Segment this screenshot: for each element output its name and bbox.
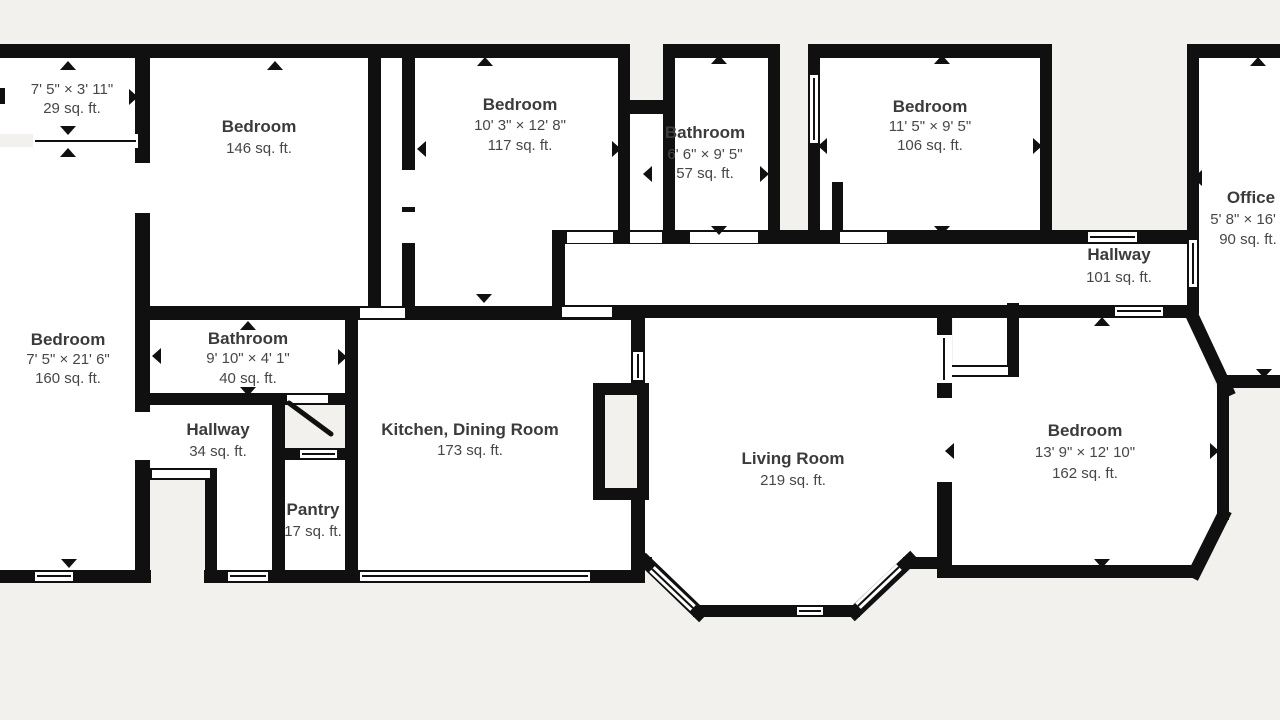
room-area: 162 sq. ft. xyxy=(1052,465,1118,482)
door-opening xyxy=(948,367,1008,375)
door-opening xyxy=(135,163,150,213)
room-dimensions: 10' 3" × 12' 8" xyxy=(474,117,566,134)
door-opening xyxy=(402,212,415,243)
room-name: Bathroom xyxy=(208,329,288,348)
room-area: 219 sq. ft. xyxy=(760,472,826,489)
door-opening xyxy=(152,470,210,478)
room-shape-bedroom-146 xyxy=(150,58,368,308)
room-name: Bedroom xyxy=(483,95,558,114)
room-area: 101 sq. ft. xyxy=(1086,269,1152,286)
room-area: 90 sq. ft. xyxy=(1219,231,1277,248)
room-area: 17 sq. ft. xyxy=(284,523,342,540)
room-area: 29 sq. ft. xyxy=(43,100,101,117)
room-shape-bedroom-162-closet xyxy=(953,317,1007,365)
label-bedroom-160: Bedroom 7' 5" × 21' 6" 160 sq. ft. xyxy=(26,330,110,387)
room-area: 57 sq. ft. xyxy=(676,165,734,182)
door-opening xyxy=(567,232,613,243)
room-name: Kitchen, Dining Room xyxy=(381,420,559,439)
door-opening xyxy=(360,308,405,318)
room-name: Bedroom xyxy=(1048,421,1123,440)
chimney-void xyxy=(605,395,637,488)
room-name: Bedroom xyxy=(31,330,106,349)
room-dimensions: 11' 5" × 9' 5" xyxy=(889,118,971,135)
room-shape-mudroom xyxy=(217,468,272,570)
room-area: 173 sq. ft. xyxy=(437,442,503,459)
room-name: Hallway xyxy=(1087,245,1151,264)
floorplan-canvas: 7' 5" × 3' 11" 29 sq. ft. Bedroom 146 sq… xyxy=(0,0,1280,720)
room-shape-strip-closet xyxy=(381,58,402,308)
door-opening xyxy=(840,232,887,243)
label-bedroom-117: Bedroom 10' 3" × 12' 8" 117 sq. ft. xyxy=(474,95,566,154)
room-name: Bedroom xyxy=(893,97,968,116)
room-dimensions: 5' 8" × 16' 7" xyxy=(1210,211,1280,228)
room-dimensions: 7' 5" × 3' 11" xyxy=(31,81,113,98)
room-name: Hallway xyxy=(186,420,250,439)
room-area: 160 sq. ft. xyxy=(35,370,101,387)
room-dimensions: 13' 9" × 12' 10" xyxy=(1035,444,1135,461)
room-name: Bathroom xyxy=(665,123,745,142)
room-name: Pantry xyxy=(287,500,340,519)
room-dimensions: 7' 5" × 21' 6" xyxy=(26,351,110,368)
door-opening xyxy=(630,232,662,243)
door-opening xyxy=(562,307,612,317)
room-dimensions: 9' 10" × 4' 1" xyxy=(206,350,290,367)
room-area: 106 sq. ft. xyxy=(897,137,963,154)
room-area: 146 sq. ft. xyxy=(226,140,292,157)
room-name: Living Room xyxy=(742,449,845,468)
room-shape-bathroom-57 xyxy=(675,58,768,232)
door-opening xyxy=(402,170,415,207)
room-name: Bedroom xyxy=(222,117,297,136)
room-name: Office xyxy=(1227,188,1275,207)
door-opening xyxy=(937,398,952,482)
door-opening xyxy=(690,232,758,243)
room-area: 34 sq. ft. xyxy=(189,443,247,460)
room-area: 40 sq. ft. xyxy=(219,370,277,387)
room-area: 117 sq. ft. xyxy=(488,137,553,154)
door-opening xyxy=(287,395,328,403)
room-dimensions: 6' 6" × 9' 5" xyxy=(667,146,742,163)
label-bathroom-57: Bathroom 6' 6" × 9' 5" 57 sq. ft. xyxy=(665,123,745,182)
label-bedroom-106: Bedroom 11' 5" × 9' 5" 106 sq. ft. xyxy=(889,97,971,154)
door-opening xyxy=(135,412,150,460)
